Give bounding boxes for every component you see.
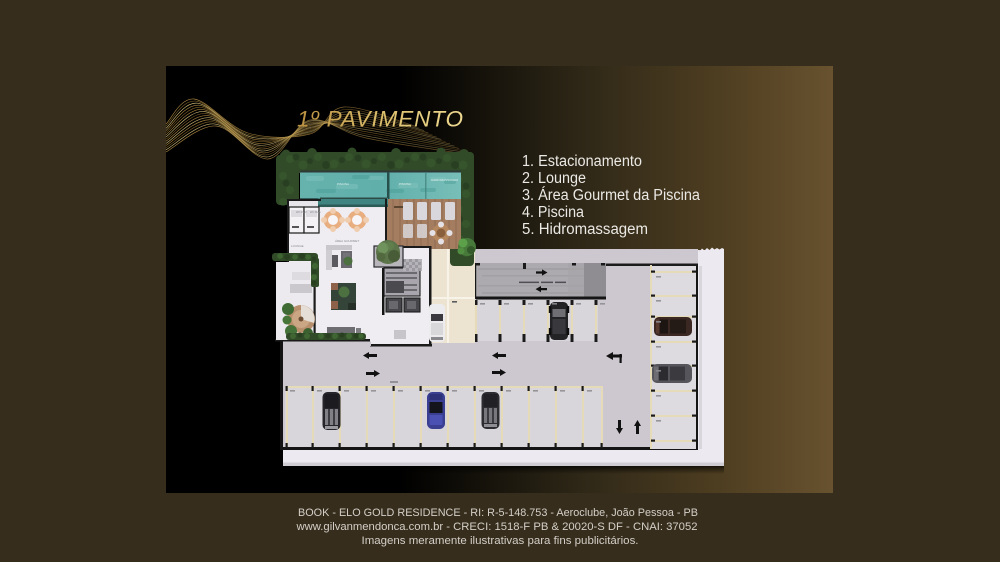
- svg-text:1. Estacionamento: 1. Estacionamento: [522, 153, 642, 170]
- svg-text:LOUNGE: LOUNGE: [291, 244, 304, 248]
- svg-text:WC FEM: WC FEM: [296, 210, 307, 214]
- svg-text:PISCINA: PISCINA: [399, 182, 411, 186]
- svg-text:Imagens meramente ilustrativas: Imagens meramente ilustrativas para fins…: [362, 535, 639, 547]
- svg-text:3. Área Gourmet da Piscina: 3. Área Gourmet da Piscina: [522, 187, 700, 204]
- svg-text:5. Hidromassagem: 5. Hidromassagem: [522, 221, 648, 238]
- svg-text:ÁREA GOURMET: ÁREA GOURMET: [335, 239, 359, 243]
- svg-text:PISCINA: PISCINA: [337, 182, 349, 186]
- svg-text:2. Lounge: 2. Lounge: [522, 170, 586, 187]
- svg-text:1º PAVIMENTO: 1º PAVIMENTO: [297, 107, 463, 132]
- svg-text:WC MAS: WC MAS: [310, 210, 321, 214]
- svg-text:4. Piscina: 4. Piscina: [522, 204, 584, 221]
- svg-text:BOOK - ELO GOLD RESIDENCE - RI: BOOK - ELO GOLD RESIDENCE - RI: R-5-148.…: [298, 507, 698, 519]
- svg-text:HIDROMASSAGEM: HIDROMASSAGEM: [431, 178, 459, 182]
- svg-text:www.gilvanmendonca.com.br - CR: www.gilvanmendonca.com.br - CRECI: 1518-…: [296, 521, 698, 533]
